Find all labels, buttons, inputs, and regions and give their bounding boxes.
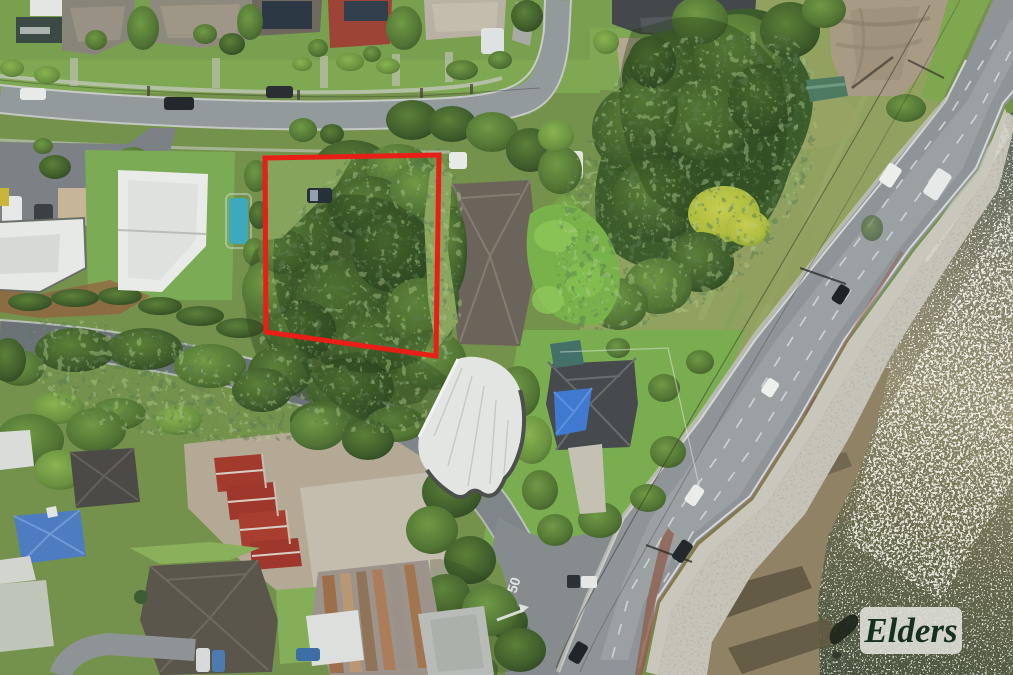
svg-text:Elders: Elders <box>863 611 957 650</box>
